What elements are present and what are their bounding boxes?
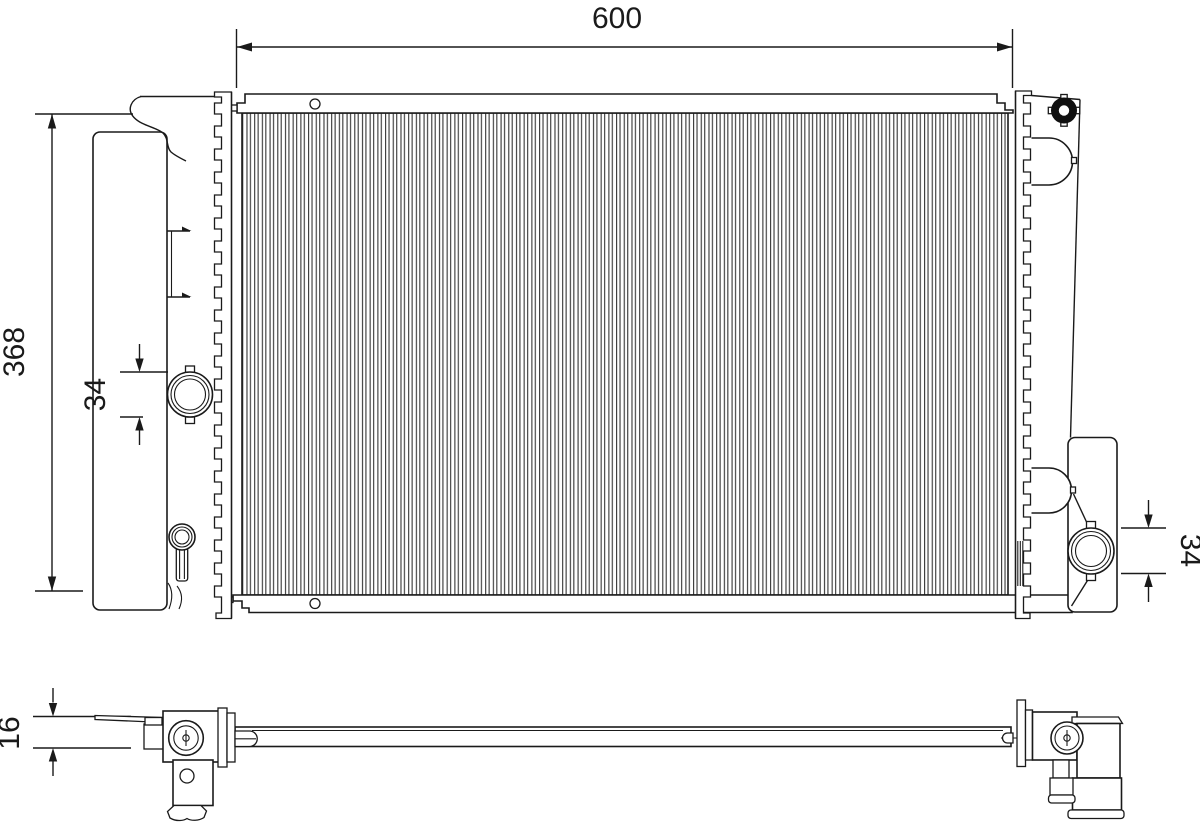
left-header-plate-2: [227, 713, 235, 762]
front-view: 600: [0, 2, 1200, 619]
tank-boss-upper: [1032, 138, 1073, 185]
dim-label-thickness: 16: [0, 716, 26, 749]
right-small-pipe: [1050, 778, 1073, 795]
radiator-core: [242, 113, 1008, 595]
radiator-technical-drawing: 600: [0, 0, 1200, 823]
right-end-block: [1077, 724, 1120, 779]
right-header-plate-1: [1017, 700, 1026, 767]
core-fins: [242, 113, 1008, 595]
dim-label-height: 368: [0, 327, 31, 377]
dim-outlet-34: 34: [1121, 500, 1200, 602]
drawing-canvas: 600: [0, 0, 1200, 823]
bottom-view: 16: [0, 688, 1124, 821]
bottom-core-slab: [235, 727, 1033, 747]
left-crimp-strip: [215, 92, 232, 619]
left-header-plate-1: [218, 708, 227, 767]
drain-stem: [176, 549, 187, 581]
inlet-port: [168, 366, 213, 424]
right-small-collar: [1049, 795, 1076, 803]
right-top-cap: [1072, 717, 1123, 724]
top-header: [231, 94, 1013, 113]
right-crimp-strip: [1016, 91, 1032, 619]
arrowhead-left: [237, 43, 252, 52]
drain-plug: [169, 524, 195, 581]
right-pin-slot: [1003, 733, 1014, 743]
dim-label-inlet: 34: [79, 378, 112, 411]
top-mount-hole: [310, 99, 320, 109]
left-outlet-flare: [168, 806, 207, 821]
bottom-left-assembly: [95, 708, 257, 821]
right-boss: [1051, 722, 1083, 754]
bottom-mount-hole: [310, 599, 320, 609]
tank-bottom-detail: [168, 583, 182, 609]
arrowhead-right: [997, 43, 1012, 52]
bottom-right-assembly: [1017, 700, 1124, 819]
dim-thickness-16: 16: [0, 688, 131, 776]
right-header-plate-2: [1026, 710, 1033, 760]
right-pipe-flange: [1068, 810, 1124, 819]
left-lower-fitting: [173, 760, 213, 806]
left-tank: [93, 97, 214, 611]
dim-width-600: 600: [237, 2, 1013, 88]
dim-label-width: 600: [592, 2, 642, 35]
tank-boss-lower: [1032, 468, 1072, 513]
left-boss: [169, 721, 204, 756]
right-main-pipe: [1073, 778, 1122, 810]
bottom-header: [228, 595, 1072, 613]
dim-label-outlet: 34: [1174, 534, 1200, 567]
